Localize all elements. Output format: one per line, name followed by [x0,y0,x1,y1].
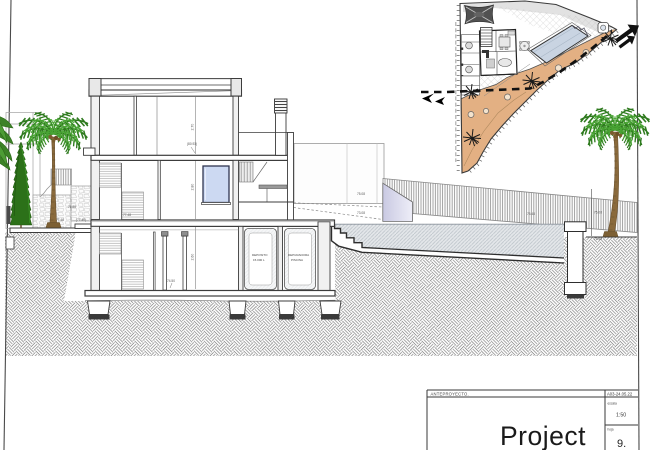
svg-text:77.46: 77.46 [56,218,64,222]
svg-text:escala: escala [608,402,617,406]
svg-text:DEPOSITO: DEPOSITO [252,253,268,257]
svg-text:hoja: hoja [608,428,614,432]
svg-text:15.000 L: 15.000 L [253,258,265,262]
svg-text:1:50: 1:50 [616,413,626,419]
svg-text:75.48: 75.48 [527,212,535,216]
svg-text:(77.40): (77.40) [76,218,86,222]
svg-text:77.48: 77.48 [123,213,131,217]
svg-text:2.70: 2.70 [191,124,195,131]
svg-text:2.80: 2.80 [191,184,195,191]
svg-text:2.60: 2.60 [191,254,195,261]
svg-text:75.48: 75.48 [594,237,602,241]
svg-text:(80.93): (80.93) [187,142,197,146]
svg-text:ANTEPROYECTO.: ANTEPROYECTO. [431,391,469,396]
svg-text:75.08: 75.08 [594,211,602,215]
svg-text:A03-24.05.22: A03-24.05.22 [607,392,633,397]
svg-text:74.50: 74.50 [167,279,175,283]
svg-text:75.08: 75.08 [357,192,365,196]
svg-text:Project: Project [500,421,586,450]
svg-text:76.88: 76.88 [68,205,76,209]
svg-text:PISCINA: PISCINA [291,258,303,262]
svg-text:9.: 9. [617,438,626,450]
svg-text:73.08: 73.08 [357,211,365,215]
svg-text:DEPURADORA: DEPURADORA [288,253,309,257]
